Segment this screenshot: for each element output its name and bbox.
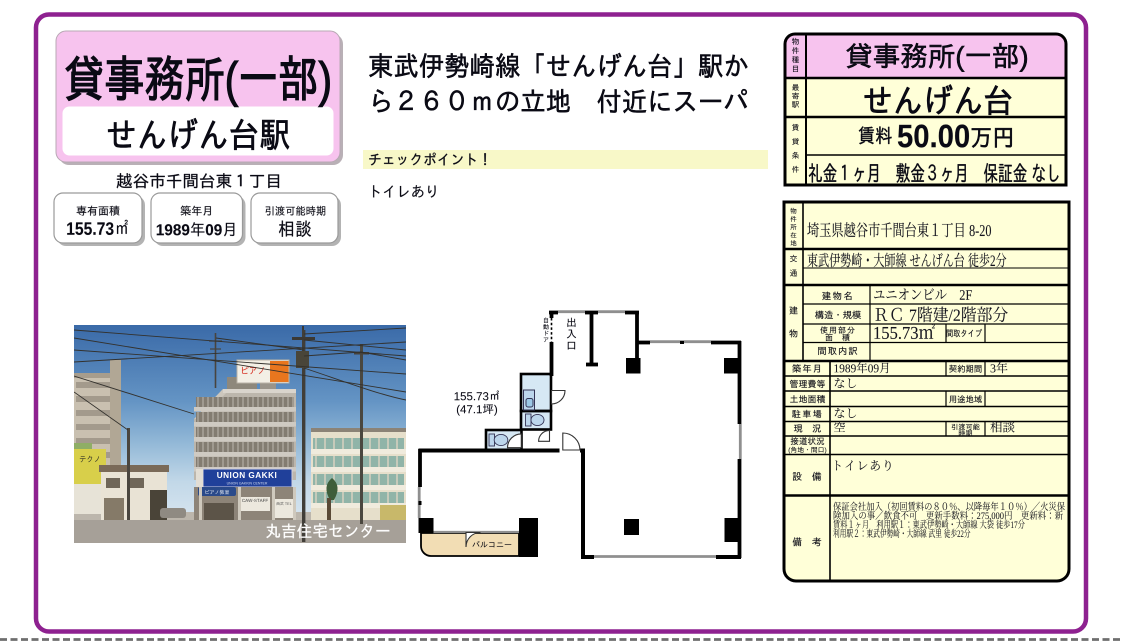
svg-text:UNION GAKKIN CENTER: UNION GAKKIN CENTER bbox=[227, 482, 268, 486]
svg-text:UNION GAKKI: UNION GAKKI bbox=[217, 471, 278, 480]
